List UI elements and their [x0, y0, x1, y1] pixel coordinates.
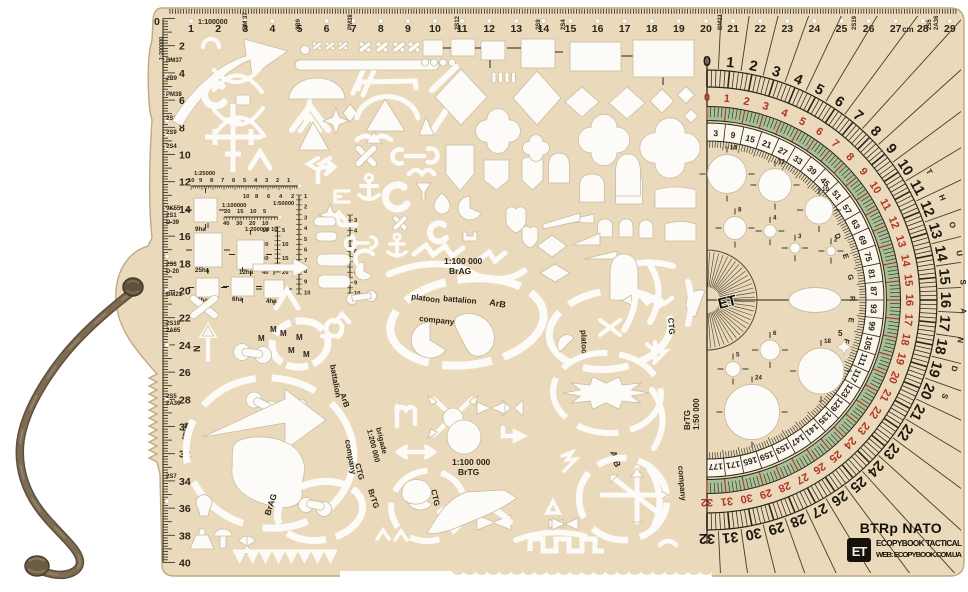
svg-text:N: N: [192, 346, 202, 353]
svg-text:2S7: 2S7: [166, 474, 177, 480]
svg-text:16: 16: [179, 231, 191, 243]
svg-text:1:200000: 1:200000: [159, 37, 165, 60]
svg-text:2S5: 2S5: [927, 19, 933, 30]
svg-text:BM37: BM37: [166, 58, 183, 64]
svg-text:5: 5: [838, 329, 843, 338]
svg-text:2A65: 2A65: [166, 328, 181, 334]
svg-text:8: 8: [738, 207, 742, 214]
svg-text:10: 10: [179, 150, 191, 162]
svg-text:31: 31: [720, 494, 733, 507]
svg-text:2: 2: [291, 194, 294, 200]
svg-text:40: 40: [223, 221, 229, 227]
svg-text:2: 2: [276, 178, 279, 184]
svg-text:0: 0: [154, 16, 160, 28]
svg-text:2S5: 2S5: [166, 394, 177, 400]
svg-text:M: M: [296, 333, 303, 342]
svg-text:23: 23: [781, 23, 793, 35]
svg-text:ET: ET: [852, 544, 868, 559]
svg-text:2: 2: [304, 205, 307, 211]
svg-text:0: 0: [704, 92, 710, 104]
svg-text:10: 10: [262, 228, 268, 234]
svg-text:PM38: PM38: [348, 14, 354, 30]
svg-text:1:100 000: 1:100 000: [444, 256, 483, 266]
svg-text:93: 93: [869, 304, 879, 314]
svg-text:R: R: [848, 296, 857, 302]
svg-text:1:50000: 1:50000: [273, 201, 294, 207]
svg-text:CTG: CTG: [666, 317, 676, 335]
svg-text:34: 34: [179, 476, 191, 488]
svg-text:4ha: 4ha: [266, 298, 277, 305]
svg-text:15: 15: [935, 268, 952, 286]
svg-text:24: 24: [179, 340, 191, 352]
svg-text:2: 2: [834, 236, 838, 243]
svg-text:1:50 000: 1:50 000: [692, 398, 701, 430]
svg-text:2A36: 2A36: [166, 401, 181, 407]
svg-text:1:100 000: 1:100 000: [452, 457, 491, 467]
svg-text:2S4: 2S4: [166, 144, 177, 150]
svg-text:PM38: PM38: [166, 92, 182, 98]
svg-text:22: 22: [754, 23, 766, 35]
svg-text:2: 2: [179, 41, 185, 53]
svg-text:18: 18: [931, 337, 950, 356]
svg-text:21: 21: [727, 23, 739, 35]
svg-text:D-20: D-20: [166, 269, 180, 275]
svg-text:22: 22: [179, 313, 191, 325]
svg-text:5: 5: [736, 352, 740, 359]
svg-text:12: 12: [483, 23, 495, 35]
svg-text:26: 26: [863, 23, 875, 35]
svg-text:1: 1: [726, 55, 736, 72]
svg-text:2S4: 2S4: [561, 19, 567, 30]
svg-text:18: 18: [898, 332, 912, 346]
svg-text:2S9: 2S9: [166, 130, 177, 136]
svg-text:17: 17: [935, 314, 952, 332]
svg-text:7: 7: [304, 258, 307, 264]
svg-text:27: 27: [890, 23, 902, 35]
svg-text:1: 1: [723, 93, 730, 106]
svg-text:1:25000: 1:25000: [194, 171, 215, 177]
svg-text:10: 10: [304, 290, 310, 296]
svg-text:16: 16: [937, 292, 953, 308]
svg-text:2B9: 2B9: [166, 76, 178, 82]
svg-text:4: 4: [269, 23, 275, 35]
svg-text:9K55: 9K55: [166, 206, 181, 212]
svg-text:177: 177: [708, 461, 723, 472]
svg-text:38: 38: [179, 530, 191, 542]
svg-text:6: 6: [773, 330, 777, 337]
svg-text:10: 10: [429, 23, 441, 35]
svg-text:18: 18: [646, 23, 658, 35]
svg-text:BTRp NATO: BTRp NATO: [860, 520, 942, 536]
svg-text:18: 18: [824, 338, 831, 345]
svg-text:31: 31: [721, 528, 739, 545]
svg-text:2B9: 2B9: [296, 18, 302, 30]
svg-text:14: 14: [931, 244, 950, 263]
svg-text:ECOPYBOOK TACTICAL: ECOPYBOOK TACTICAL: [876, 539, 962, 548]
svg-text:1: 1: [188, 23, 194, 35]
svg-text:2S9: 2S9: [536, 19, 542, 30]
svg-text:32: 32: [699, 530, 715, 546]
svg-text:M: M: [280, 329, 287, 338]
svg-text:18: 18: [179, 258, 191, 270]
svg-text:12ha: 12ha: [239, 269, 254, 276]
svg-text:M: M: [288, 346, 295, 355]
svg-text:M: M: [258, 334, 265, 343]
svg-text:20: 20: [700, 23, 712, 35]
svg-text:28: 28: [179, 394, 191, 406]
svg-text:12: 12: [778, 159, 785, 166]
svg-text:29: 29: [944, 23, 956, 35]
svg-text:19: 19: [673, 23, 685, 35]
svg-text:24: 24: [809, 23, 821, 35]
svg-text:99: 99: [866, 321, 877, 332]
svg-text:15: 15: [237, 209, 244, 215]
svg-text:2S1: 2S1: [166, 213, 177, 219]
svg-text:17: 17: [901, 313, 914, 326]
svg-text:87: 87: [869, 286, 879, 296]
svg-text:15: 15: [901, 274, 914, 287]
svg-text:4: 4: [179, 68, 185, 80]
svg-text:10: 10: [188, 178, 194, 184]
svg-text:16: 16: [592, 23, 604, 35]
svg-text:4: 4: [773, 215, 777, 222]
svg-text:30: 30: [236, 221, 242, 227]
svg-text:30: 30: [744, 524, 763, 543]
svg-text:3: 3: [798, 233, 802, 240]
svg-text:26: 26: [179, 367, 191, 379]
svg-text:36: 36: [179, 503, 191, 515]
svg-text:1:100000: 1:100000: [198, 19, 228, 26]
svg-text:BM 37: BM 37: [243, 12, 249, 30]
svg-text:40: 40: [179, 558, 191, 570]
svg-text:D-39: D-39: [166, 220, 180, 226]
svg-text:7: 7: [221, 178, 224, 184]
svg-text:10: 10: [822, 186, 829, 193]
svg-text:2S19: 2S19: [852, 15, 858, 30]
svg-text:2S3: 2S3: [166, 262, 177, 268]
svg-text:9: 9: [405, 23, 411, 35]
svg-text:6ha: 6ha: [232, 296, 243, 303]
svg-text:81: 81: [866, 268, 877, 279]
svg-text:6: 6: [324, 23, 330, 35]
svg-text:10: 10: [250, 209, 256, 215]
svg-text:8: 8: [378, 23, 384, 35]
svg-text:2S19: 2S19: [166, 321, 181, 327]
svg-text:13: 13: [510, 23, 522, 35]
svg-text:15: 15: [282, 256, 289, 262]
svg-text:9ha: 9ha: [195, 226, 206, 233]
svg-text:2A36: 2A36: [934, 15, 940, 30]
svg-text:10: 10: [282, 242, 288, 248]
svg-text:BrTG: BrTG: [683, 410, 692, 430]
svg-text:BrAG: BrAG: [449, 266, 472, 276]
svg-text:0: 0: [703, 54, 711, 70]
svg-text:10: 10: [243, 194, 249, 200]
svg-text:14: 14: [730, 145, 737, 152]
svg-text:16: 16: [903, 294, 915, 306]
svg-text:24: 24: [755, 374, 762, 381]
svg-text:2S12: 2S12: [455, 15, 461, 30]
svg-text:30: 30: [739, 491, 753, 505]
svg-text:BrTG: BrTG: [458, 467, 480, 477]
svg-text:17: 17: [619, 23, 631, 35]
svg-text:3: 3: [713, 128, 719, 138]
svg-text:32: 32: [701, 496, 713, 508]
svg-text:M: M: [270, 325, 277, 334]
svg-text:BM21: BM21: [166, 292, 183, 298]
svg-text:M: M: [303, 350, 310, 359]
svg-text:A: A: [959, 308, 968, 314]
svg-text:WEB: ECOPYBOOK.COM.UA: WEB: ECOPYBOOK.COM.UA: [876, 550, 963, 559]
